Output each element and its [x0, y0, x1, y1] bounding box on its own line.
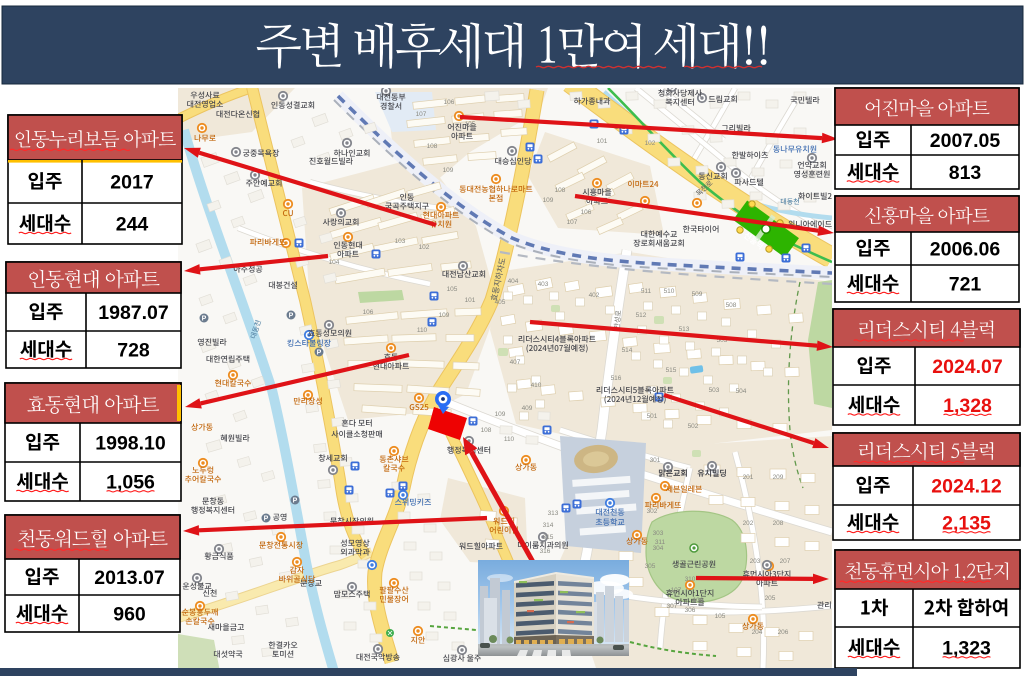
svg-text:960: 960: [113, 603, 146, 625]
svg-text:105: 105: [715, 613, 726, 620]
svg-text:108: 108: [427, 143, 438, 150]
svg-text:209: 209: [773, 474, 784, 481]
svg-text:502: 502: [688, 423, 699, 430]
svg-text:108: 108: [555, 187, 566, 194]
svg-text:508: 508: [726, 302, 737, 309]
svg-text:404: 404: [508, 278, 519, 285]
svg-text:509: 509: [692, 291, 703, 298]
svg-text:301: 301: [650, 457, 661, 464]
svg-text:110: 110: [417, 327, 428, 334]
svg-text:107: 107: [416, 111, 427, 118]
svg-text:102: 102: [419, 244, 430, 251]
svg-text:313: 313: [548, 510, 559, 517]
svg-text:307: 307: [667, 603, 678, 610]
svg-text:202: 202: [743, 520, 754, 527]
svg-text:409: 409: [522, 405, 533, 412]
svg-text:101: 101: [597, 138, 608, 145]
svg-text:813: 813: [949, 162, 982, 184]
svg-text:2017: 2017: [110, 171, 153, 193]
svg-text:204: 204: [752, 629, 763, 636]
svg-text:1,328: 1,328: [943, 395, 992, 417]
svg-text:402: 402: [589, 292, 600, 299]
svg-text:2013.07: 2013.07: [94, 567, 165, 589]
svg-text:302: 302: [647, 508, 658, 515]
svg-text:2024.07: 2024.07: [932, 356, 1003, 378]
svg-text:107: 107: [567, 219, 578, 226]
svg-text:306: 306: [685, 607, 696, 614]
svg-text:109: 109: [495, 411, 506, 418]
svg-text:514: 514: [622, 347, 633, 354]
svg-text:106: 106: [363, 309, 374, 316]
svg-text:P: P: [293, 498, 298, 505]
svg-text:105: 105: [465, 121, 476, 128]
svg-text:315: 315: [543, 534, 554, 541]
svg-text:512: 512: [636, 312, 647, 319]
svg-text:403: 403: [538, 281, 549, 288]
svg-text:503: 503: [709, 387, 720, 394]
svg-text:310: 310: [685, 576, 696, 583]
svg-text:314: 314: [543, 522, 554, 529]
svg-text:207: 207: [780, 558, 791, 565]
svg-text:108: 108: [481, 427, 492, 434]
svg-text:P: P: [264, 516, 269, 523]
svg-text:1987.07: 1987.07: [98, 302, 169, 324]
svg-text:405: 405: [495, 299, 506, 306]
svg-text:102: 102: [645, 140, 656, 147]
svg-text:109: 109: [443, 167, 454, 174]
svg-text:1998.10: 1998.10: [95, 432, 166, 454]
svg-text:304: 304: [653, 545, 664, 552]
svg-text:501: 501: [647, 413, 658, 420]
svg-text:P: P: [317, 350, 322, 357]
svg-text:511: 511: [641, 288, 652, 295]
svg-text:109: 109: [543, 197, 554, 204]
svg-text:407: 407: [510, 359, 521, 366]
svg-text:1,323: 1,323: [942, 637, 991, 659]
svg-text:106: 106: [693, 597, 704, 604]
svg-text:513: 513: [679, 326, 690, 333]
svg-text:103: 103: [395, 238, 406, 245]
svg-text:107: 107: [671, 587, 682, 594]
svg-text:2024.12: 2024.12: [931, 475, 1002, 497]
svg-text:205: 205: [765, 595, 776, 602]
svg-text:105: 105: [447, 286, 458, 293]
svg-text:109: 109: [439, 312, 450, 319]
svg-text:P: P: [289, 313, 294, 320]
svg-text:515: 515: [666, 367, 677, 374]
svg-text:1,056: 1,056: [106, 471, 155, 493]
svg-text:410: 410: [531, 382, 542, 389]
svg-text:244: 244: [116, 213, 149, 235]
svg-text:106: 106: [444, 99, 455, 106]
svg-text:311: 311: [655, 539, 666, 546]
svg-text:516: 516: [611, 375, 622, 382]
svg-text:2007.05: 2007.05: [930, 130, 1001, 152]
svg-text:2,135: 2,135: [942, 512, 991, 534]
svg-text:110: 110: [504, 436, 515, 443]
svg-text:106: 106: [581, 209, 592, 216]
svg-text:104: 104: [329, 259, 340, 266]
svg-text:101: 101: [465, 297, 476, 304]
svg-text:203: 203: [750, 558, 761, 565]
svg-text:305: 305: [645, 563, 656, 570]
svg-text:2006.06: 2006.06: [930, 238, 1001, 260]
svg-text:206: 206: [778, 629, 789, 636]
svg-text:504: 504: [736, 388, 747, 395]
svg-text:728: 728: [117, 339, 150, 361]
svg-text:303: 303: [653, 530, 664, 537]
svg-text:316: 316: [540, 548, 551, 555]
svg-text:P: P: [202, 316, 207, 323]
svg-text:201: 201: [743, 474, 754, 481]
svg-text:510: 510: [664, 288, 675, 295]
svg-text:721: 721: [949, 273, 982, 295]
svg-text:208: 208: [773, 520, 784, 527]
